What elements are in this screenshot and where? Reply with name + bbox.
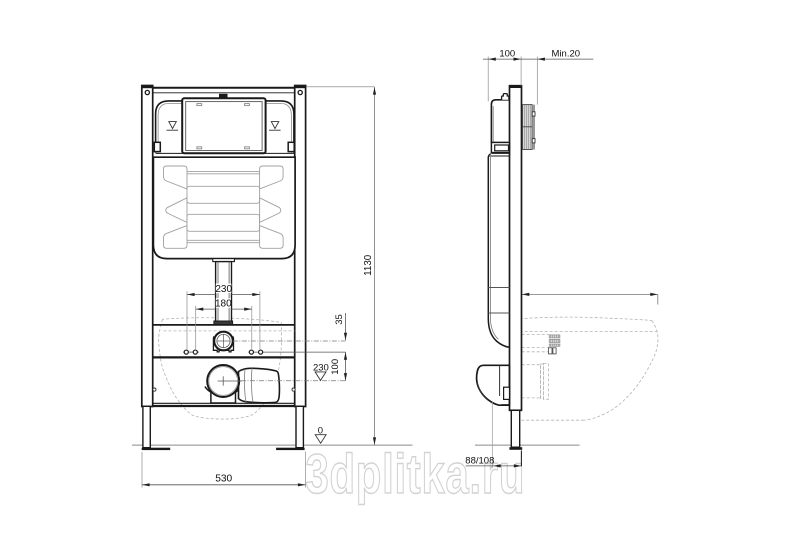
svg-text:88/108: 88/108: [465, 455, 494, 466]
svg-text:35: 35: [334, 314, 345, 325]
svg-text:Min.20: Min.20: [552, 48, 581, 59]
svg-text:180: 180: [215, 299, 232, 310]
svg-text:1130: 1130: [363, 254, 374, 276]
svg-text:100: 100: [330, 359, 341, 375]
svg-text:230: 230: [215, 284, 232, 295]
svg-text:100: 100: [499, 48, 515, 59]
svg-text:530: 530: [215, 474, 232, 485]
